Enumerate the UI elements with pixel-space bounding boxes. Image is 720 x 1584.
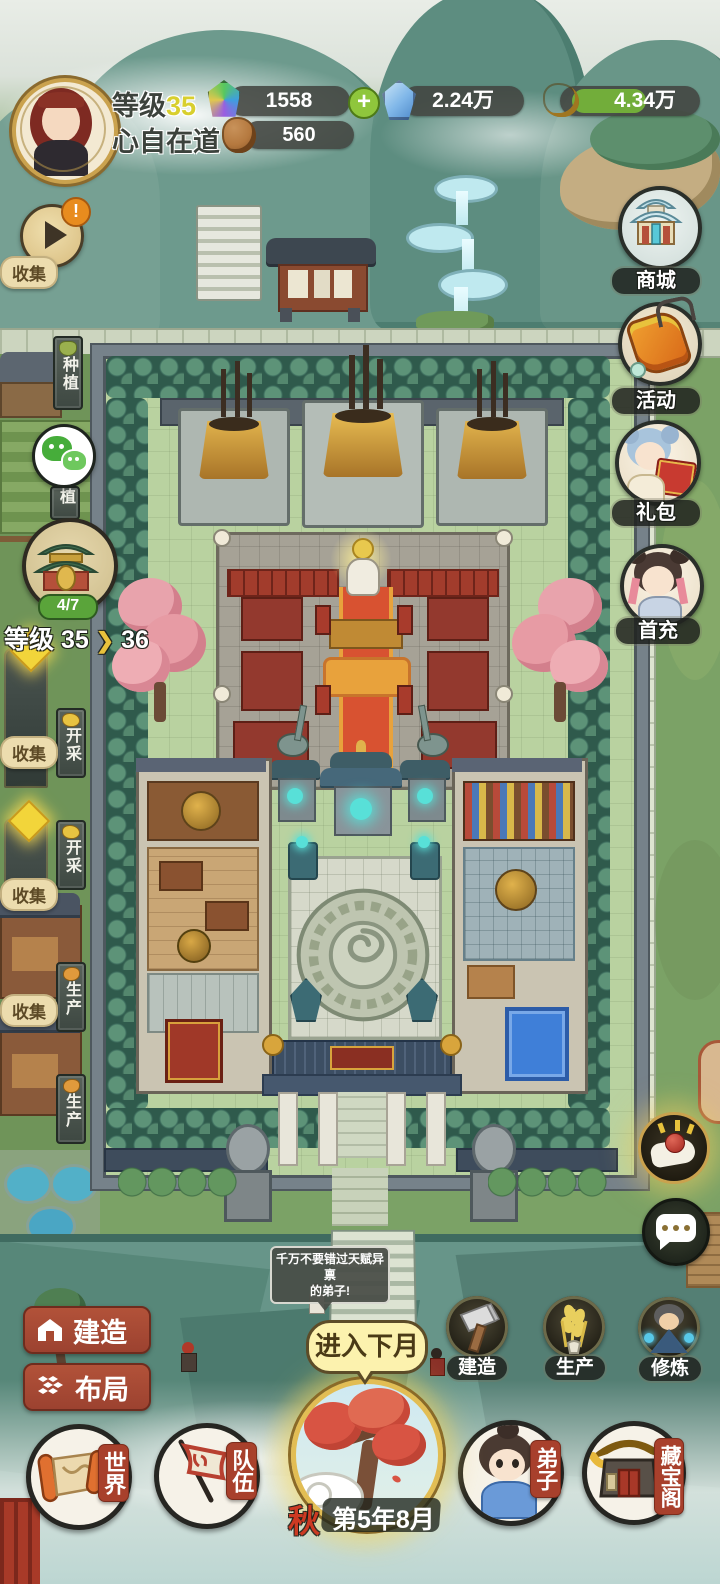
collect-bubble-label: 收集	[12, 265, 46, 284]
avatar-ring	[20, 86, 106, 172]
maple-foliage	[372, 1424, 426, 1466]
cyan-flame	[418, 836, 430, 848]
clay-counter: 560	[244, 121, 354, 149]
pavilion-roof	[320, 768, 402, 786]
pink-tree	[508, 578, 608, 728]
shrine-small	[404, 760, 446, 832]
wheat-icon	[546, 1299, 602, 1355]
treasure-label-text: 藏宝阁	[658, 1445, 681, 1508]
hall-railing	[227, 569, 339, 597]
crane-body	[277, 733, 309, 757]
gem-counter: 1558	[228, 86, 350, 116]
crane-body	[417, 733, 449, 757]
chat-bubble-icon	[656, 1214, 696, 1242]
cultivator-body	[650, 1329, 688, 1353]
center-pavilion	[322, 748, 400, 848]
player-level: 等级35	[112, 84, 196, 123]
gate-plaque	[330, 1046, 394, 1070]
player-level-label: 等级	[112, 91, 166, 121]
waterfall-pools	[398, 175, 518, 335]
sparkle	[675, 1120, 680, 1131]
bubble-tail	[318, 1302, 332, 1311]
pillar-cap	[495, 529, 513, 547]
shop-button[interactable]	[618, 186, 702, 270]
pavilion-finial	[356, 740, 366, 752]
grid-tiles-icon	[35, 1374, 67, 1400]
gold-nugget-icon	[62, 713, 80, 727]
product-icon	[63, 1079, 80, 1093]
tree-row-right	[488, 1160, 608, 1216]
table	[205, 901, 249, 931]
layout-mode-button[interactable]: 布局	[23, 1363, 151, 1411]
gift-label-text: 礼包	[636, 502, 676, 524]
red-pillar	[315, 605, 331, 635]
tree-canopy	[590, 108, 720, 170]
produce-sign-1[interactable]: 生产	[56, 962, 86, 1032]
cyan-orb	[350, 798, 372, 820]
house-detail	[12, 937, 58, 971]
crystal-counter: 2.24万	[402, 86, 524, 116]
gate-pillar	[426, 1092, 446, 1166]
notice-paper	[288, 270, 308, 298]
pool	[438, 269, 508, 301]
burner-mouth	[209, 417, 259, 431]
gift-button[interactable]	[615, 420, 701, 506]
build-mode-label: 建造	[73, 1311, 127, 1350]
game-date: 第5年8月	[332, 1500, 435, 1536]
mine-sign-1[interactable]: 开采	[56, 708, 86, 778]
crane-statue	[417, 703, 447, 759]
play-icon	[45, 221, 67, 249]
incense-stick	[491, 361, 496, 417]
crane-neck	[294, 705, 307, 742]
hedge-top	[106, 356, 610, 398]
hall-railing	[387, 569, 499, 597]
sparkle	[657, 1122, 665, 1133]
cta-tail-fill	[358, 1369, 372, 1380]
house-icon	[35, 1316, 65, 1344]
gate-pillar	[318, 1092, 338, 1166]
notice-pavilion	[272, 238, 370, 322]
disciple-label[interactable]: 弟子	[530, 1440, 561, 1498]
furniture-left	[241, 597, 303, 641]
shrine-small	[274, 760, 316, 832]
disciple-eye	[512, 1459, 519, 1468]
crane-neck	[418, 705, 431, 742]
disciple-eye	[496, 1459, 503, 1468]
trunk	[554, 682, 566, 722]
bronze-burner	[181, 791, 221, 831]
shop-label-text: 商城	[636, 270, 676, 292]
team-label[interactable]: 队伍	[226, 1442, 257, 1500]
gold-ornament	[262, 1034, 284, 1056]
red-pillar	[315, 685, 331, 715]
plant-sign-partial-label: 植	[53, 488, 77, 506]
blue-pool	[505, 1007, 569, 1081]
plant-sign[interactable]: 种植	[53, 336, 83, 410]
sect-progress-badge: 4/7	[38, 594, 98, 620]
next-month-button[interactable]: 进入下月	[306, 1320, 428, 1374]
figure-head	[352, 538, 374, 560]
crates	[467, 965, 515, 999]
player-level-value: 35	[166, 91, 196, 121]
collect-bubble-label: 收集	[12, 745, 46, 764]
gold-nugget-icon	[62, 825, 80, 839]
sect-level-label: 等级	[4, 626, 54, 654]
disciple-robe	[481, 1481, 537, 1519]
pavilion-roof	[330, 752, 392, 768]
gold-ornament	[440, 1034, 462, 1056]
quick-build-label[interactable]: 建造	[447, 1356, 507, 1380]
pavilion-leg	[280, 308, 292, 322]
charge-girl-ribbon	[628, 578, 640, 605]
gate	[262, 1040, 458, 1168]
quick-produce-label[interactable]: 生产	[545, 1356, 605, 1380]
gift-girl-bun	[661, 426, 679, 444]
season-label: 秋	[288, 1496, 320, 1542]
sect-level-from: 35	[61, 626, 89, 654]
cultivator-face	[659, 1313, 679, 1330]
produce-sign-label: 生产	[59, 1093, 83, 1129]
collect-bubble-label: 收集	[12, 1003, 46, 1022]
mine-sign-label: 开采	[59, 839, 83, 875]
roof-edge	[452, 758, 582, 772]
gem-add-button[interactable]: +	[348, 87, 380, 119]
product-icon	[63, 967, 80, 981]
mine-sign-label: 开采	[59, 727, 83, 763]
red-cabinet	[165, 1019, 223, 1083]
sect-level-progress: 等级 35 ❯ 36	[4, 620, 149, 656]
alert-badge: !	[61, 197, 91, 227]
furniture-left	[241, 651, 303, 711]
incense-stick	[247, 373, 252, 417]
roof-edge	[136, 758, 266, 772]
alert-badge-text: !	[73, 201, 79, 221]
pavilion-roof	[266, 238, 376, 264]
bookshelf	[463, 781, 575, 841]
hammer-icon	[449, 1299, 505, 1355]
quick-cultivate-label[interactable]: 修炼	[639, 1357, 701, 1381]
first-charge-label-text: 首充	[638, 620, 678, 642]
produce-sign-2[interactable]: 生产	[56, 1074, 86, 1144]
gate-path	[332, 1168, 388, 1226]
game-screen: 等级35 心自在道 1558 + 2.24万 4.34万 560 ! 收集 种植…	[0, 0, 720, 1584]
red-pill-icon	[665, 1133, 685, 1153]
plus-icon: +	[357, 88, 371, 115]
incense-stick	[477, 369, 482, 417]
gate-pillar	[278, 1092, 298, 1166]
build-mode-button[interactable]: 建造	[23, 1306, 151, 1354]
pill-hand-button[interactable]	[638, 1112, 710, 1184]
cultivate-glow	[684, 1333, 694, 1343]
house-detail	[12, 1054, 58, 1088]
notice-paper	[314, 270, 330, 298]
water-stream	[456, 191, 468, 225]
notice-paper	[334, 270, 352, 298]
shrine-roof	[400, 760, 450, 778]
wechat-icon-small-bubble	[61, 449, 88, 472]
sect-level-to: 36	[121, 626, 149, 654]
lantern-bead	[630, 362, 646, 378]
trunk	[154, 682, 166, 722]
plant-sign-label: 种植	[56, 356, 80, 392]
collect-bubble-4[interactable]: 收集	[0, 994, 58, 1027]
bronze-burner	[495, 869, 537, 911]
gate-pillar	[386, 1092, 406, 1166]
incense-platform	[302, 400, 424, 528]
incense-stick	[363, 345, 369, 409]
collect-bubble-1[interactable]: 收集	[0, 256, 58, 289]
red-pillar	[397, 685, 413, 715]
cyan-orb	[417, 788, 433, 804]
teal-brazier	[288, 842, 318, 880]
tree-row-left	[118, 1160, 238, 1216]
maple-leaf-falling	[391, 1474, 402, 1484]
collect-bubble-label: 收集	[12, 887, 46, 906]
gold-counter: 4.34万	[560, 86, 700, 116]
team-label-text: 队伍	[229, 1449, 254, 1493]
player-name: 心自在道	[112, 120, 220, 159]
cyan-flame	[296, 836, 308, 848]
sparkle	[686, 1123, 694, 1134]
first-charge-label[interactable]: 首充	[616, 618, 700, 644]
pavilion-leg	[348, 308, 360, 322]
npc-sprite	[428, 1348, 446, 1376]
furniture-right	[427, 651, 489, 711]
furniture-right	[427, 597, 489, 641]
incense-stick	[349, 355, 355, 409]
quick-cultivate-button[interactable]	[638, 1297, 700, 1359]
incense-platform	[178, 408, 290, 526]
altar-gold-box	[329, 619, 403, 649]
incense-stick	[377, 359, 383, 409]
library-building-right	[452, 758, 588, 1094]
quick-produce-text: 生产	[556, 1357, 594, 1378]
collect-bubble-2[interactable]: 收集	[0, 736, 58, 769]
seed-icon	[59, 341, 77, 356]
charge-girl-bun	[626, 548, 646, 564]
pillar-cap	[213, 685, 231, 703]
world-label[interactable]: 世界	[98, 1444, 129, 1502]
gift-girl-bun	[621, 426, 639, 444]
round-building-partial	[698, 1040, 720, 1124]
shop-label[interactable]: 商城	[612, 268, 700, 294]
collect-bubble-3[interactable]: 收集	[0, 878, 58, 911]
teal-brazier	[410, 842, 440, 880]
chevron-right-icon: ❯	[96, 628, 114, 653]
pond	[4, 1164, 52, 1204]
npc-body	[430, 1358, 445, 1376]
sect-button[interactable]: 4/7	[22, 518, 118, 614]
events-label-text: 活动	[636, 390, 676, 412]
events-label[interactable]: 活动	[612, 388, 700, 414]
quick-produce-button[interactable]	[543, 1296, 605, 1358]
grass-patch	[655, 840, 720, 1000]
events-button[interactable]	[618, 302, 702, 386]
chat-button[interactable]	[642, 1198, 710, 1266]
disciple-label-text: 弟子	[533, 1447, 558, 1491]
table	[159, 861, 203, 891]
bronze-censer	[177, 929, 211, 963]
disciple-face	[489, 1449, 525, 1481]
incense-platform	[436, 408, 548, 526]
quick-build-button[interactable]	[446, 1296, 508, 1358]
library-building-left	[136, 758, 272, 1094]
shop-pagoda-icon	[622, 190, 690, 258]
charge-girl-face	[642, 566, 674, 596]
incense-stick	[235, 361, 240, 417]
incense-stick	[221, 369, 226, 417]
gold-icon	[543, 83, 579, 117]
quick-cultivate-text: 修炼	[651, 1358, 689, 1379]
npc-body	[181, 1353, 197, 1372]
avatar[interactable]	[12, 78, 118, 184]
quick-build-text: 建造	[458, 1357, 496, 1378]
first-charge-button[interactable]	[620, 544, 704, 628]
cyan-orb	[287, 788, 303, 804]
clay-icon	[222, 117, 256, 153]
figure-robe	[346, 558, 380, 596]
npc-speech-line1: 千万不要错过天赋异禀	[274, 1251, 386, 1283]
shrine-roof	[270, 760, 320, 778]
burner-mouth	[467, 417, 517, 431]
sect-temple-icon	[26, 524, 106, 604]
sect-progress-text: 4/7	[57, 597, 79, 614]
wechat-button[interactable]	[32, 424, 96, 488]
npc-speech-bubble: 千万不要错过天赋异禀 的弟子!	[270, 1246, 390, 1304]
charge-girl-bun	[670, 548, 690, 564]
npc-speech-line2: 的弟子!	[274, 1283, 386, 1299]
gift-label[interactable]: 礼包	[612, 500, 700, 526]
cultivate-glow	[644, 1333, 654, 1343]
next-month-label: 进入下月	[315, 1331, 419, 1361]
mine-sign-2[interactable]: 开采	[56, 820, 86, 890]
world-label-text: 世界	[101, 1451, 126, 1495]
npc-sprite	[178, 1342, 198, 1372]
disciple-bun	[497, 1421, 519, 1439]
treasure-label[interactable]: 藏宝阁	[654, 1438, 684, 1515]
plant-sign-partial[interactable]: 植	[50, 486, 80, 520]
stone-stairs-top	[196, 205, 262, 301]
sect-master-figure	[336, 536, 386, 598]
burner-mouth	[335, 409, 391, 423]
layout-mode-label: 布局	[75, 1368, 129, 1407]
pillar-cap	[213, 529, 231, 547]
pond	[50, 1164, 98, 1204]
gold-counter-value: 4.34万	[590, 86, 700, 116]
red-pillar	[397, 605, 413, 635]
incense-stick	[503, 373, 508, 417]
produce-sign-label: 生产	[59, 981, 83, 1017]
crane-statue	[277, 703, 307, 759]
